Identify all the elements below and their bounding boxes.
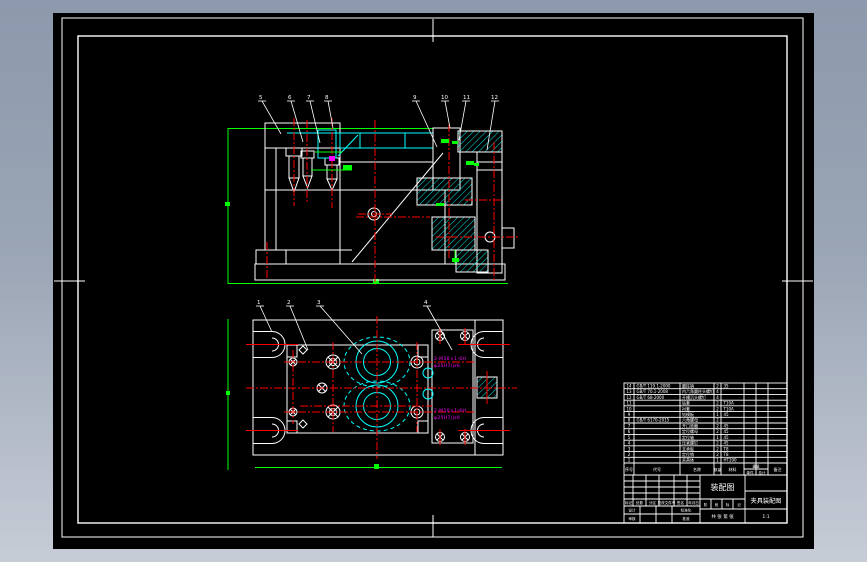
balloon-11: 11	[463, 95, 470, 101]
bom-cell: 4	[716, 389, 719, 394]
bom-cell: 1	[716, 458, 719, 463]
cad-drawing-viewport: 5 6 7 8 9 10 11 12	[0, 0, 867, 562]
scale-value: 1:1	[762, 514, 769, 520]
bom-cell: HT200	[724, 458, 738, 463]
bom-cell: 4	[716, 395, 719, 400]
bom-cell: 定位螺母	[682, 428, 698, 434]
bom-cell: 3	[628, 446, 631, 451]
balloon-6: 6	[288, 95, 292, 101]
role-check: 审核	[628, 516, 636, 521]
bom-cell: 9	[628, 412, 631, 417]
balloon-9: 9	[413, 95, 417, 101]
bom-cell: 5	[628, 435, 631, 440]
stage-cell-4: 记	[737, 502, 741, 507]
rev-h-doc: 更改文件号	[658, 500, 676, 505]
bom-cell: 夹具体	[682, 457, 694, 463]
bom-cell: 2	[716, 423, 719, 428]
bom-cell: T8	[723, 446, 729, 451]
bom-cell: 4	[628, 441, 631, 446]
callout-upper-2: φ25H7/js6	[434, 363, 460, 369]
stage-cell-3: 标	[726, 502, 730, 507]
balloon-1: 1	[257, 300, 261, 306]
bom-cell: GB/T 6170-2015	[637, 418, 670, 423]
bom-cell: 衬套	[682, 405, 690, 411]
bom-cell: GB/T 70.1-2008	[637, 389, 669, 394]
bom-cell: 压紧螺钉	[682, 440, 698, 446]
sheet-count: 共 张 第 张	[711, 513, 734, 520]
balloon-12: 12	[491, 95, 498, 101]
bom-cell: 6	[628, 429, 631, 434]
rev-h-date: 年月日	[688, 500, 699, 505]
bom-cell: 1	[628, 458, 631, 463]
bom-cell: 2	[716, 406, 719, 411]
bom-cell: 2	[716, 383, 719, 388]
bom-cell: 14	[626, 383, 632, 388]
bom-header-single: 单件	[746, 470, 754, 475]
bom-cell: 45	[724, 435, 730, 440]
stage-cell-2: 段	[715, 502, 719, 507]
bom-cell: 10	[626, 406, 632, 411]
bom-cell: 六角螺母	[682, 417, 698, 423]
bom-cell: 2	[716, 441, 719, 446]
bom-cell: 8	[628, 418, 631, 423]
bom-cell: 2	[716, 446, 719, 451]
bom-cell: 35	[724, 383, 730, 388]
bom-header-remark: 备注	[774, 466, 782, 472]
bom-cell: 定位销	[682, 451, 694, 457]
bom-cell: 2	[716, 418, 719, 423]
bom-cell: 钻套	[682, 400, 690, 406]
bom-cell: GB/T 68-2000	[637, 395, 665, 400]
rev-h-mark: 标记	[625, 500, 633, 505]
bom-header-code: 代号	[653, 466, 661, 472]
callout-upper-1: 2-M10×1-6H	[434, 356, 466, 362]
bom-cell: 定位轴	[682, 434, 694, 440]
bom-cell: 7	[628, 423, 631, 428]
rev-h-count: 处数	[636, 500, 644, 505]
bom-cell: 45	[724, 412, 730, 417]
role-standard: 标准化	[681, 508, 692, 513]
role-approve: 批准	[682, 516, 690, 521]
bom-header-no: 序号	[625, 466, 633, 472]
bom-cell: 12	[626, 395, 632, 400]
balloon-7: 7	[307, 95, 311, 101]
magenta-mark	[329, 156, 335, 161]
callout-lower-1: 2-M10×1-6H	[434, 408, 466, 414]
rev-h-zone: 分区	[649, 500, 657, 505]
bom-cell: 13	[626, 389, 632, 394]
bom-header-mat: 材料	[729, 466, 737, 472]
bom-cell: 2	[716, 429, 719, 434]
bom-cell: 开口垫圈	[682, 422, 698, 428]
bom-cell: 1	[716, 435, 719, 440]
bom-cell: 2	[716, 452, 719, 457]
bom-cell: 45	[724, 429, 730, 434]
balloon-10: 10	[441, 95, 448, 101]
bom-cell: 2	[716, 401, 719, 406]
bom-cell: 支承板	[682, 445, 694, 451]
balloon-4: 4	[424, 300, 428, 306]
project-name: 夹具装配图	[751, 497, 782, 505]
bom-cell: T8	[723, 452, 729, 457]
bom-cell: 45	[724, 423, 730, 428]
bom-cell: GB/T 119.1-2000	[637, 383, 671, 388]
bom-header-name: 名称	[693, 466, 701, 472]
bom-header-total: 总计	[758, 470, 766, 475]
bom-cell: 内六角圆柱头螺钉	[682, 388, 714, 394]
bom-cell: 45	[724, 441, 730, 446]
bom-cell: 圆柱销	[682, 382, 694, 388]
bom-cell: T10A	[723, 401, 735, 406]
bom-header-weight: 重量	[752, 464, 760, 469]
stage-cell-1: 阶	[704, 502, 708, 507]
balloon-3: 3	[317, 300, 321, 306]
balloon-8: 8	[325, 95, 329, 101]
balloon-2: 2	[287, 300, 291, 306]
bom-header-qty: 数量	[714, 467, 722, 472]
bom-cell: T10A	[723, 406, 735, 411]
bom-cell: 2	[628, 452, 631, 457]
rev-h-sign: 签名	[677, 500, 685, 505]
balloon-5: 5	[259, 95, 263, 101]
bom-cell: 11	[626, 401, 632, 406]
drawing-name: 装配图	[711, 482, 735, 492]
bom-cell: 开槽沉头螺钉	[682, 394, 706, 400]
bom-cell: 1	[716, 412, 719, 417]
role-design: 设计	[628, 508, 636, 513]
callout-lower-2: φ25H7/js6	[434, 415, 460, 421]
bom-cell: 钻模板	[682, 411, 694, 417]
